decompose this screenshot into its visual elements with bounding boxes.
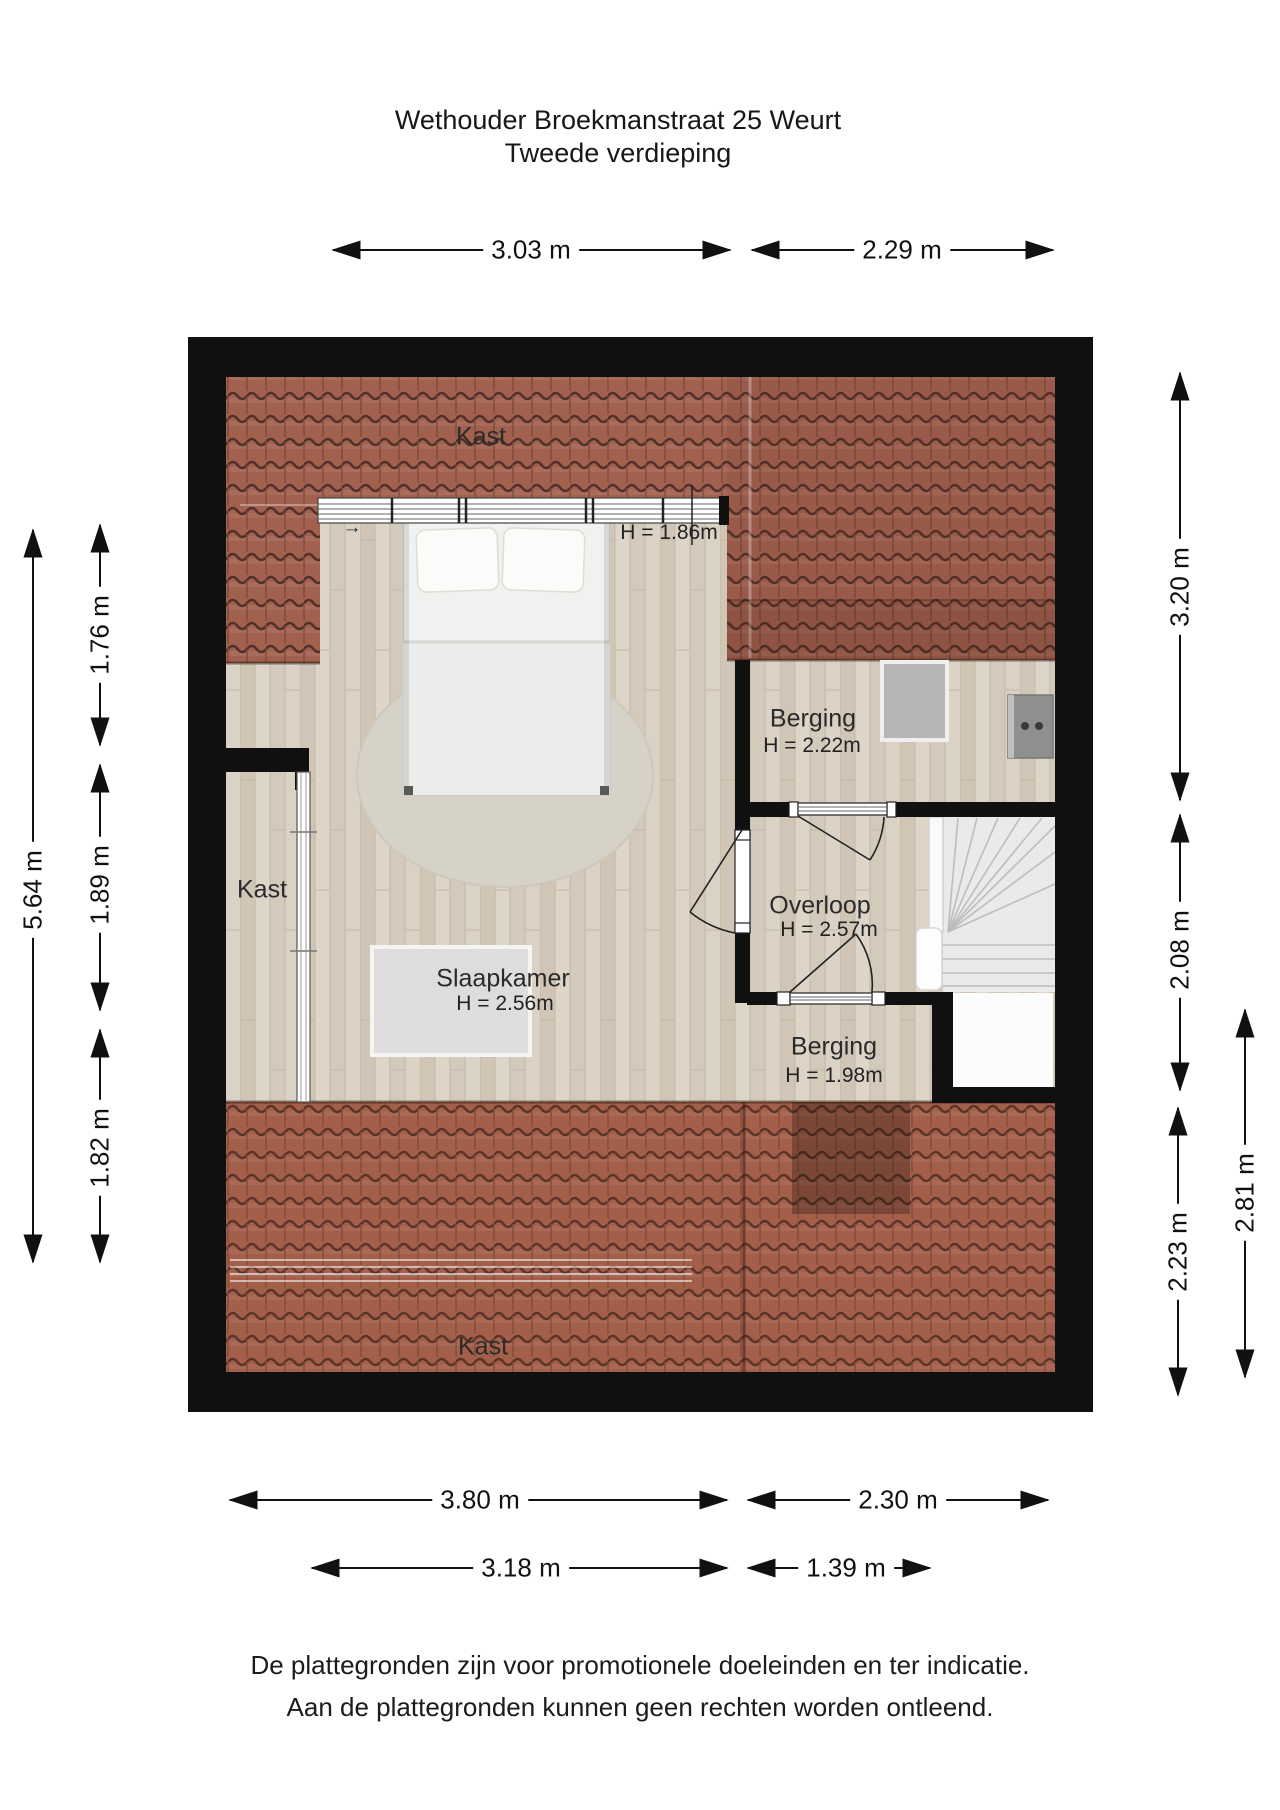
floor-subtitle: Tweede verdieping — [0, 137, 1236, 170]
floorplan-page: Wethouder Broekmanstraat 25 Weurt Tweede… — [0, 0, 1280, 1810]
stairwell-void — [953, 993, 1053, 1087]
room-label-slaapkamer: Slaapkamer — [436, 965, 569, 994]
disclaimer-line2: Aan de plattegronden kunnen geen rechten… — [0, 1692, 1280, 1723]
address-title: Wethouder Broekmanstraat 25 Weurt — [0, 104, 1236, 137]
room-height-slaapkamer: H = 2.56m — [456, 992, 553, 1016]
storage-panel — [882, 662, 947, 740]
room-label-kast-left: Kast — [237, 876, 287, 905]
room-height-berging-top: H = 2.22m — [763, 734, 860, 758]
room-label-kast-bottom: Kast — [458, 1333, 508, 1362]
dim-right-middle: 2.08 m — [1164, 902, 1197, 998]
room-label-kast-top: Kast — [456, 423, 506, 452]
dim-left-overall: 5.64 m — [17, 842, 50, 938]
slide-direction-icon: → — [343, 517, 362, 539]
room-label-overloop: Overloop — [769, 892, 870, 921]
room-label-berging-bottom: Berging — [791, 1033, 877, 1062]
dim-left-middle: 1.89 m — [84, 837, 117, 933]
chimney-shadow — [792, 1102, 910, 1214]
disclaimer-line1: De plattegronden zijn voor promotionele … — [0, 1650, 1280, 1681]
room-height-berging-bottom: H = 1.98m — [785, 1064, 882, 1088]
dim-bottom-3: 3.18 m — [473, 1552, 569, 1585]
mechanical-unit — [1008, 695, 1053, 758]
dim-left-upper: 1.76 m — [84, 587, 117, 683]
dim-bottom-4: 1.39 m — [798, 1552, 894, 1585]
dim-right-lower: 2.23 m — [1162, 1204, 1195, 1300]
bed — [403, 521, 610, 795]
dim-right-outer: 2.81 m — [1229, 1145, 1262, 1241]
room-height-dormer: H = 1.86m — [620, 521, 717, 545]
pillow — [416, 528, 499, 593]
stair-stringer — [929, 817, 943, 932]
dim-right-upper: 3.20 m — [1164, 539, 1197, 635]
floorplan-drawing — [0, 0, 1280, 1810]
room-height-overloop: H = 2.57m — [780, 918, 877, 942]
room-label-berging-top: Berging — [770, 705, 856, 734]
dim-left-lower: 1.82 m — [84, 1100, 117, 1196]
dim-top-left: 3.03 m — [483, 234, 579, 267]
stair-newel — [916, 928, 942, 990]
pillow — [502, 528, 585, 593]
staircase — [916, 817, 1055, 992]
dim-top-right: 2.29 m — [854, 234, 950, 267]
dim-bottom-1: 3.80 m — [432, 1484, 528, 1517]
dim-bottom-2: 2.30 m — [850, 1484, 946, 1517]
page-title: Wethouder Broekmanstraat 25 Weurt Tweede… — [0, 104, 1236, 170]
